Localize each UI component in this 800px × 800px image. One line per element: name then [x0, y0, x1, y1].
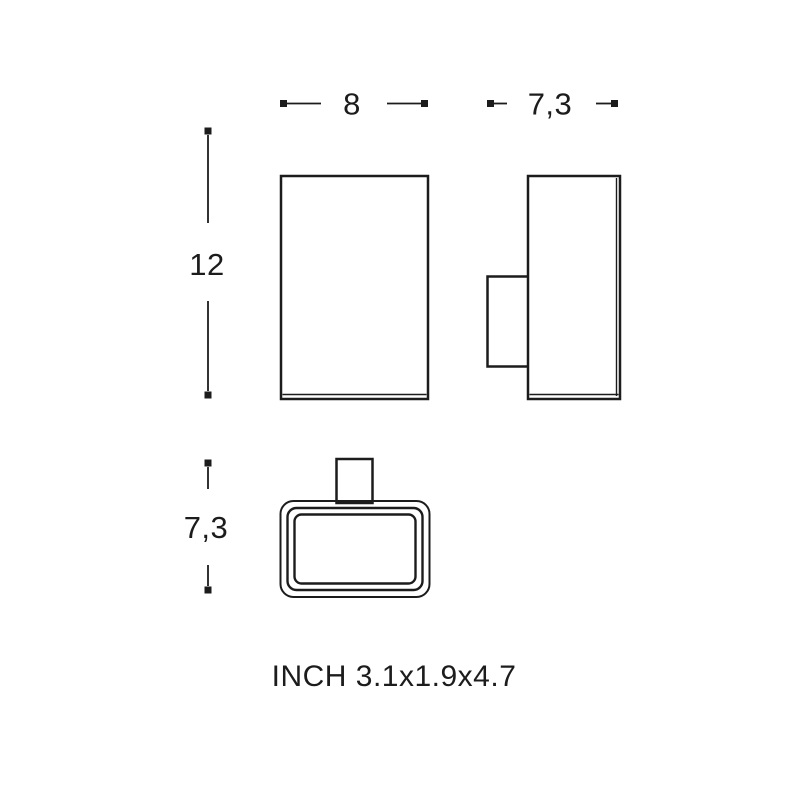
dimension-end-square: [205, 587, 212, 594]
side-view-body: [528, 176, 620, 399]
dimension-front-width-label: 8: [343, 87, 361, 122]
dimension-height-label: 12: [189, 247, 224, 282]
dimension-front-width: 8: [280, 87, 428, 122]
inch-conversion-caption: INCH 3.1x1.9x4.7: [272, 660, 517, 693]
dimension-side-depth: 7,3: [487, 87, 618, 122]
dimension-end-square: [487, 100, 494, 107]
technical-drawing-canvas: 8 7,3 12: [0, 0, 800, 800]
dimension-plan-depth-label: 7,3: [184, 510, 229, 545]
dimension-side-depth-label: 7,3: [528, 87, 573, 122]
plan-view-mount-tab: [337, 459, 373, 503]
dimension-end-square: [205, 128, 212, 135]
plan-view-middle-rim: [288, 508, 423, 590]
plan-view: [281, 459, 430, 597]
plan-view-inner-rim: [295, 515, 416, 584]
side-view-wall-bracket: [488, 277, 529, 367]
dimension-plan-depth: 7,3: [184, 460, 229, 594]
dimension-end-square: [205, 392, 212, 399]
front-view: [281, 176, 428, 399]
side-view: [488, 176, 621, 399]
dimension-height: 12: [189, 128, 224, 399]
dimension-end-square: [421, 100, 428, 107]
dimension-end-square: [611, 100, 618, 107]
dimension-end-square: [280, 100, 287, 107]
front-view-body: [281, 176, 428, 399]
dimension-end-square: [205, 460, 212, 467]
technical-drawing-page: 8 7,3 12: [0, 0, 800, 800]
